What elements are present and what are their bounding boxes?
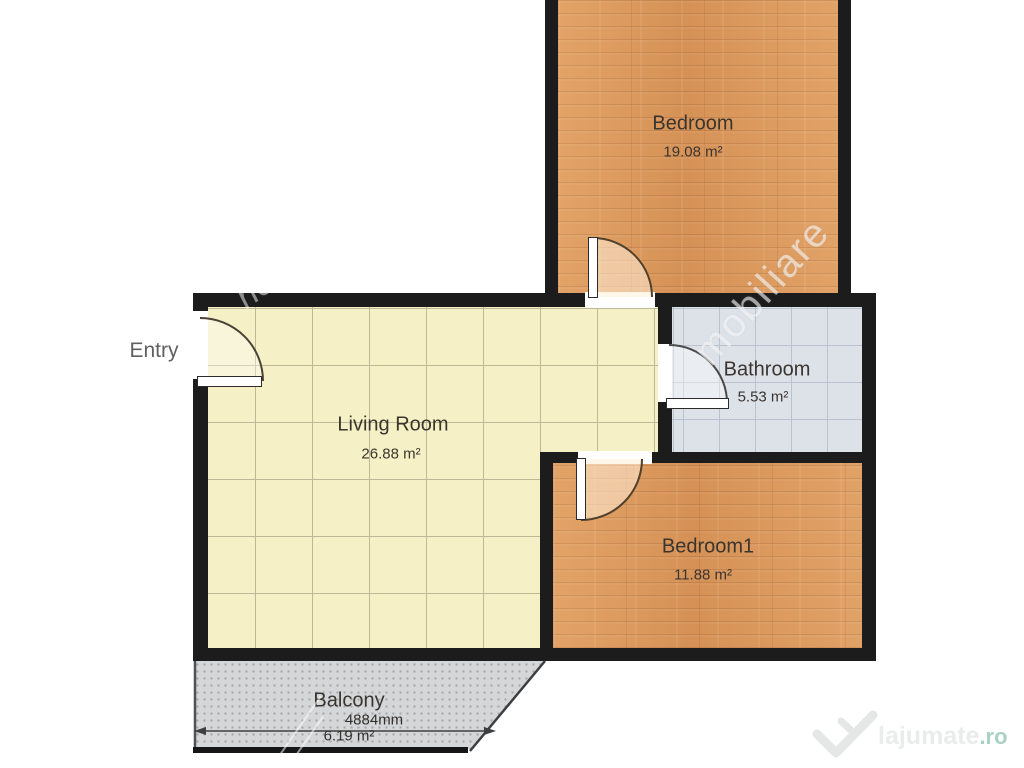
lajumate-watermark-tld: .ro: [979, 724, 1007, 750]
balcony-label: Balcony: [313, 690, 384, 713]
lajumate-watermark: lajumate.ro: [878, 722, 1008, 751]
wall-living-bedroom1: [540, 452, 553, 661]
lajumate-watermark-text: lajumate: [878, 722, 979, 751]
living-room-label: Living Room: [337, 414, 448, 437]
bedroom1-area: 11.88 m²: [674, 567, 732, 584]
bathroom-label: Bathroom: [724, 359, 811, 382]
lajumate-logo-icon: [817, 715, 873, 753]
bathroom-door-opening: [658, 344, 672, 402]
bedroom-label: Bedroom: [652, 113, 733, 136]
living-room-area: 26.88 m²: [361, 446, 420, 463]
entry-door-leaf: [197, 376, 262, 387]
bedroom1-door-opening: [578, 451, 652, 464]
bathroom-area: 5.53 m²: [738, 389, 789, 406]
wall-bedroom-right: [838, 0, 851, 302]
entry-label: Entry: [129, 339, 178, 363]
bedroom1-label: Bedroom1: [662, 536, 754, 559]
balcony-width-dimension: 4884mm: [345, 712, 403, 729]
bedroom1-door-leaf: [576, 458, 586, 520]
wall-bedroom-left: [545, 0, 558, 307]
balcony-area: 6.19 m²: [324, 728, 375, 745]
entry-door-opening: [193, 311, 208, 379]
bedroom-door-leaf: [588, 237, 598, 298]
bedroom-area: 19.08 m²: [663, 144, 722, 161]
wall-right: [862, 293, 876, 661]
lajumate-logo-icon-inner: [841, 718, 870, 734]
wall-bottom: [193, 648, 876, 661]
bathroom-door-leaf: [666, 398, 729, 409]
